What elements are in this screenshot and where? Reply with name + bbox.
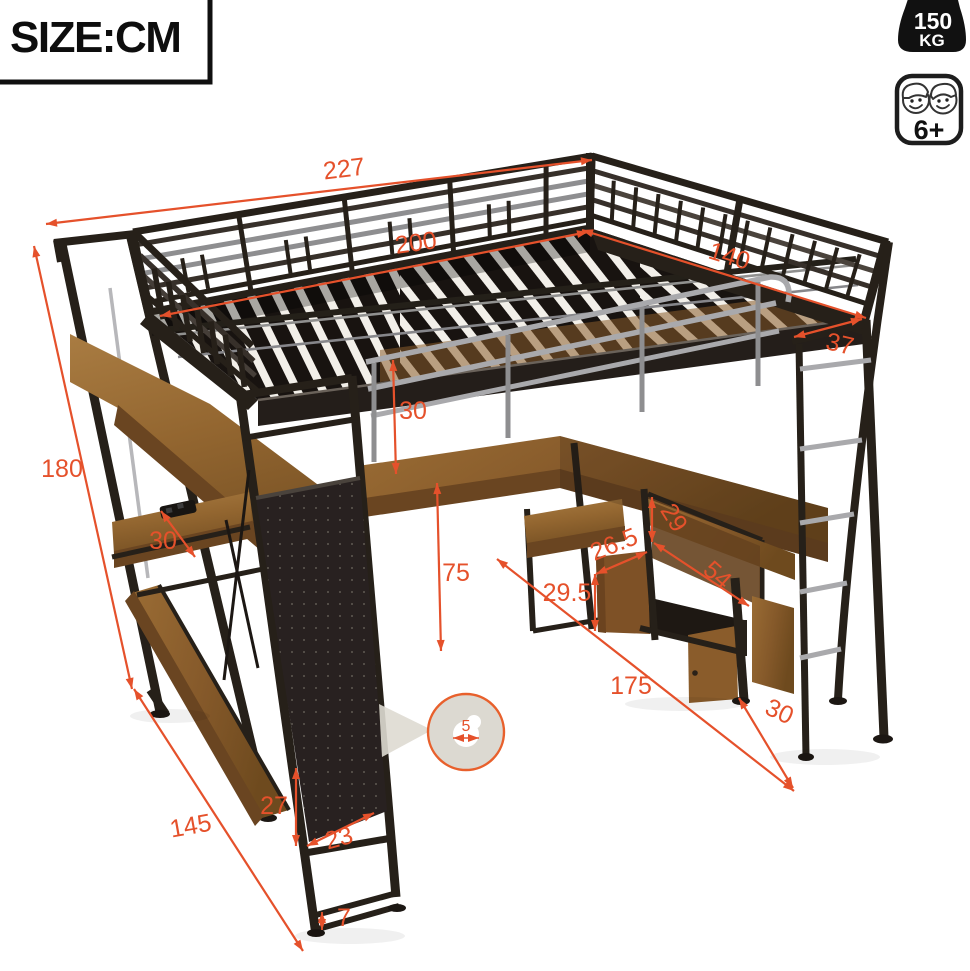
- svg-text:27: 27: [260, 792, 288, 820]
- svg-text:175: 175: [610, 672, 652, 700]
- svg-text:7: 7: [337, 904, 351, 932]
- svg-text:200: 200: [393, 226, 438, 260]
- svg-text:30: 30: [399, 397, 427, 425]
- svg-text:180: 180: [41, 455, 83, 483]
- svg-text:227: 227: [322, 153, 367, 186]
- svg-text:KG: KG: [919, 31, 945, 50]
- svg-text:75: 75: [442, 559, 470, 587]
- svg-text:SIZE:CM: SIZE:CM: [10, 13, 180, 62]
- svg-text:5: 5: [462, 718, 471, 735]
- svg-text:30: 30: [149, 527, 177, 555]
- svg-text:29.5: 29.5: [543, 579, 592, 607]
- svg-text:6+: 6+: [914, 115, 945, 145]
